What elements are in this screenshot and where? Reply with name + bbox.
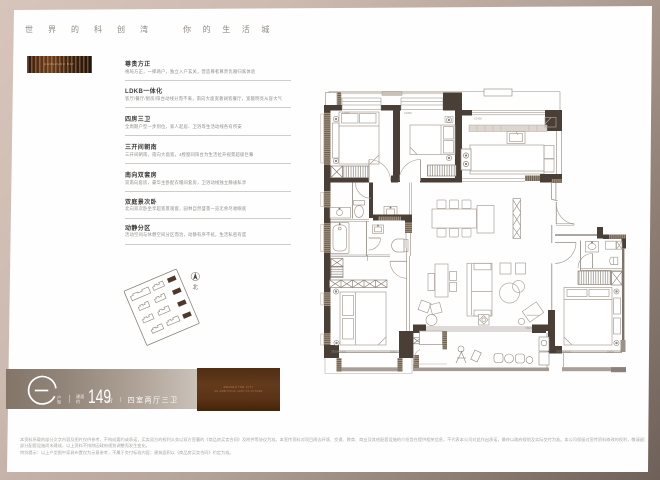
svg-text:型: 型: [57, 398, 61, 404]
svg-text:北: 北: [193, 283, 199, 291]
svg-text:C1826: C1826: [404, 111, 412, 115]
svg-text:㎡: ㎡: [107, 397, 113, 405]
svg-text:C2418: C2418: [474, 117, 482, 121]
svg-text:1600: 1600: [607, 350, 614, 354]
svg-text:3350X3900: 3350X3900: [331, 350, 347, 354]
svg-text:2800: 2800: [390, 350, 397, 354]
svg-text:C1825: C1825: [342, 111, 350, 115]
svg-text:四室两厅三卫: 四室两厅三卫: [128, 395, 179, 404]
svg-text:3750X4000: 3750X4000: [556, 350, 572, 354]
svg-text:约: 约: [76, 398, 80, 405]
